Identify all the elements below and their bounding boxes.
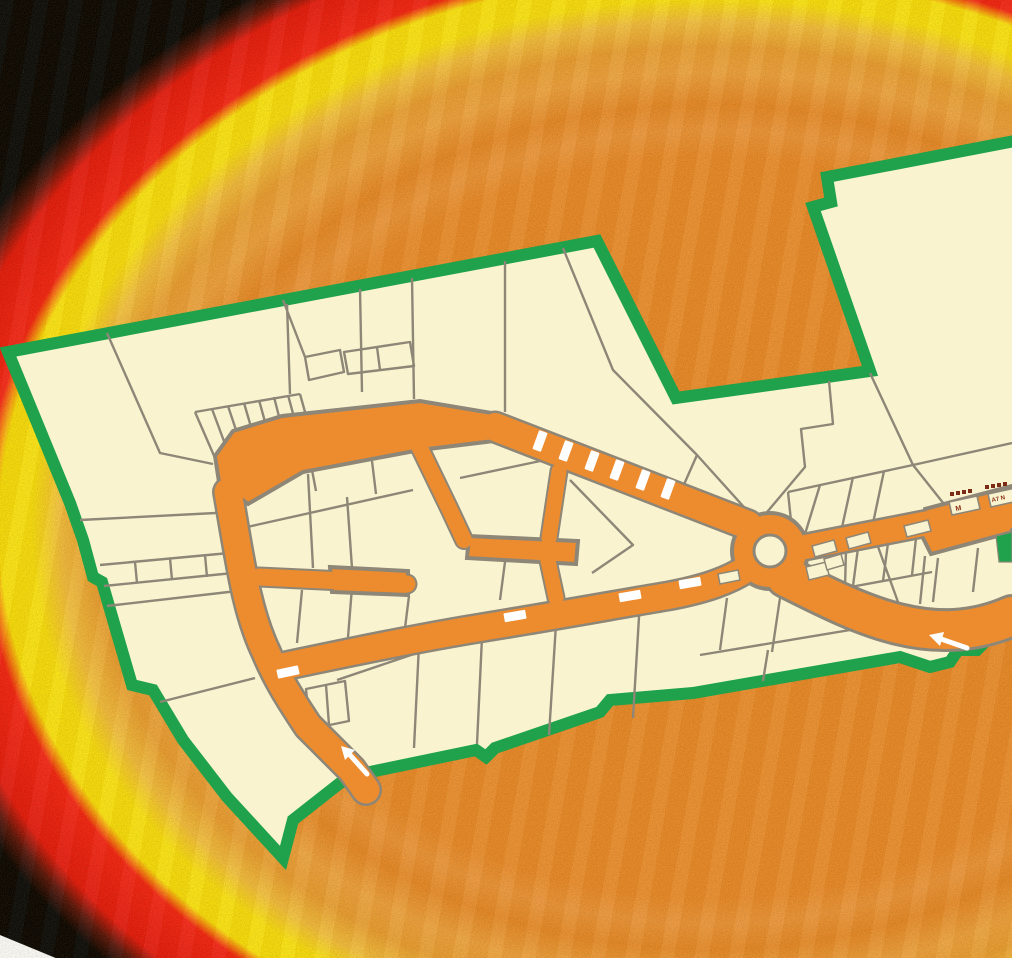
roundabout-island	[754, 535, 786, 567]
map-viewport[interactable]: M A7 N	[0, 0, 1012, 958]
tree-marker	[962, 490, 966, 494]
tree-marker	[956, 491, 960, 495]
tree-marker	[968, 489, 972, 493]
tree-marker	[985, 485, 989, 489]
plat-map: M A7 N	[0, 0, 1012, 958]
tree-marker	[997, 483, 1001, 487]
tree-marker	[1003, 482, 1007, 486]
connector-road-3	[547, 556, 556, 598]
connector-road-2	[549, 471, 559, 538]
green-lot	[996, 532, 1012, 562]
tree-marker	[950, 492, 954, 496]
tree-marker	[991, 484, 995, 488]
